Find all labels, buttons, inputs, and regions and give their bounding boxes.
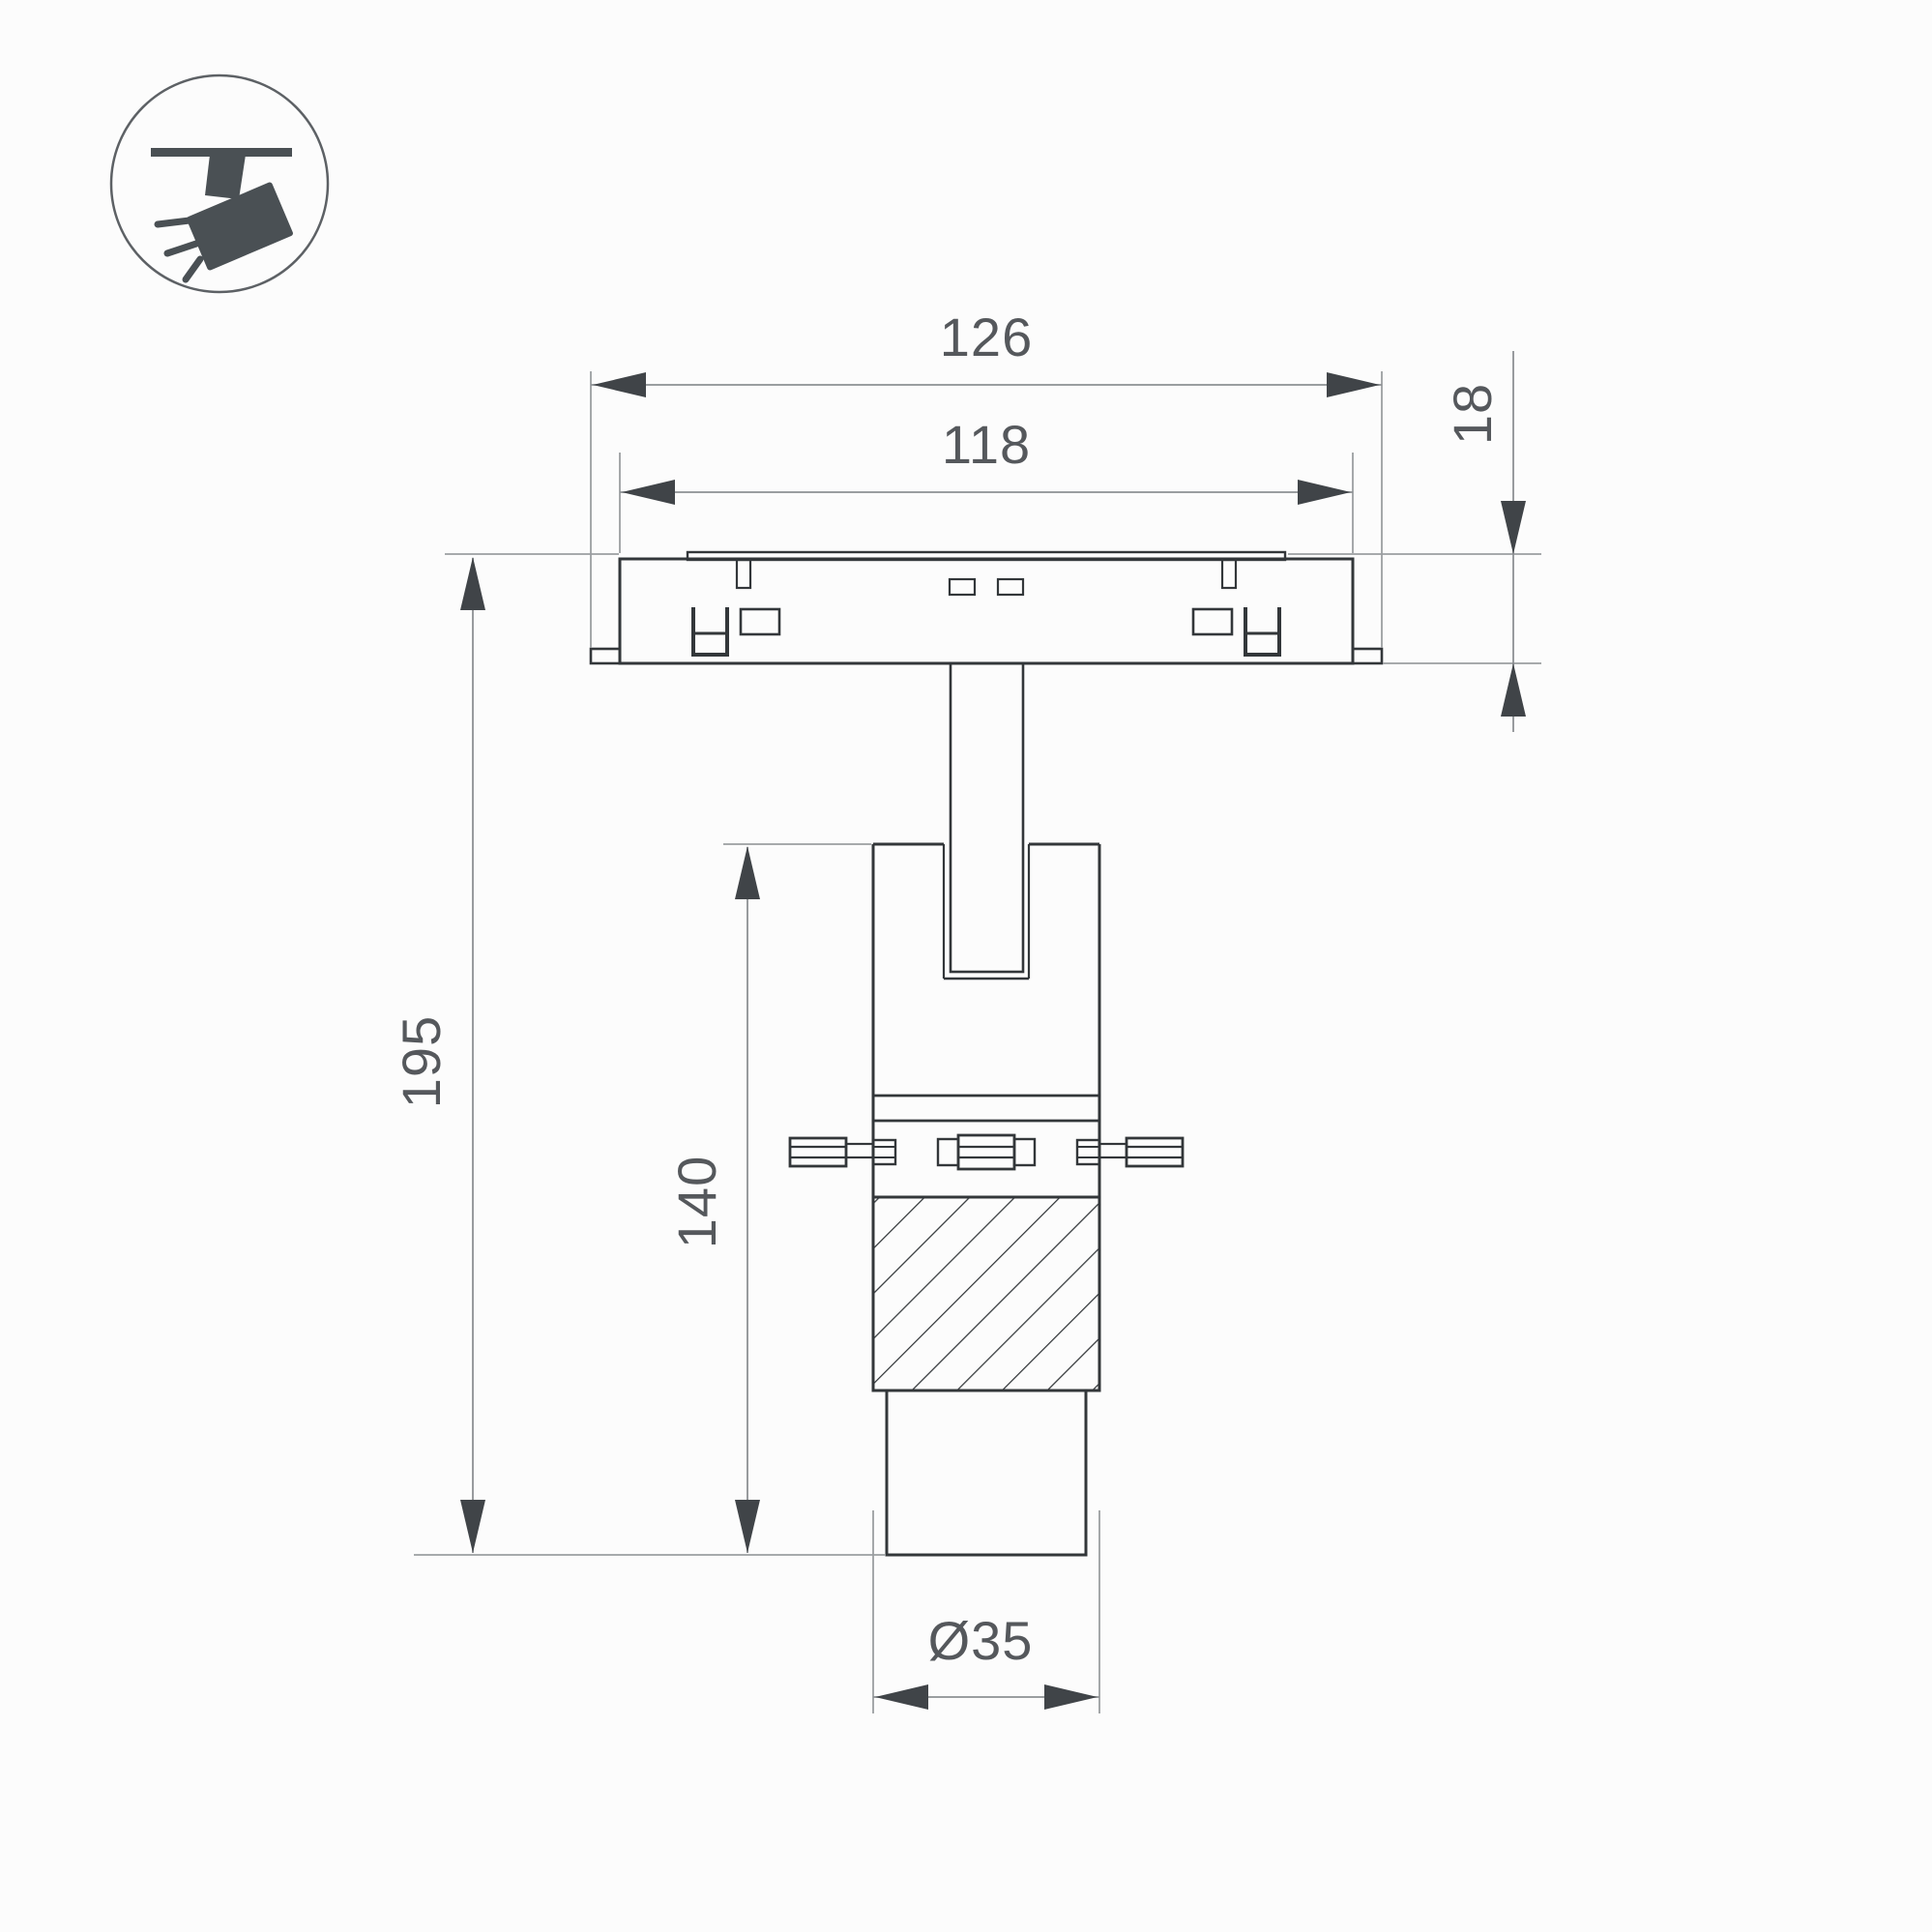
dimension-diameter-label: Ø35 — [928, 1610, 1034, 1671]
plate-clip-left — [737, 560, 750, 588]
plate-hole-left — [950, 579, 975, 595]
dimension-118-label: 118 — [942, 414, 1031, 475]
knob-right — [1077, 1138, 1183, 1166]
dimension-126-label: 126 — [940, 307, 1033, 367]
drawing-canvas: 126 118 18 195 140 — [0, 0, 1932, 1932]
stem-tube — [951, 663, 1023, 972]
knob-left — [790, 1138, 895, 1166]
track-adapter-plate — [591, 552, 1382, 663]
plate-contact-left — [741, 609, 779, 634]
dimension-195-label: 195 — [391, 1015, 452, 1108]
lamp-body — [790, 844, 1183, 1555]
plate-bracket-left — [693, 607, 727, 655]
knurled-section — [873, 1197, 1099, 1390]
dimension-140-label: 140 — [666, 1156, 727, 1248]
plate-tab-left — [591, 649, 620, 663]
dimension-drawing: 126 118 18 195 140 — [0, 0, 1932, 1932]
plate-tab-right — [1353, 649, 1382, 663]
dimension-126: 126 — [591, 307, 1382, 648]
dimension-195: 195 — [391, 554, 886, 1555]
lamp-stem — [944, 663, 1029, 979]
dimension-diameter-35: Ø35 — [873, 1510, 1099, 1713]
plate-hole-right — [998, 579, 1023, 595]
icon-stem — [205, 155, 246, 199]
ceiling-track-spotlight-icon — [111, 75, 328, 292]
dimension-140: 140 — [666, 844, 871, 1553]
plate-body — [620, 559, 1353, 663]
dimension-18: 18 — [1288, 351, 1541, 732]
dimension-18-label: 18 — [1442, 383, 1503, 445]
plate-clip-right — [1222, 560, 1236, 588]
dimension-118: 118 — [620, 414, 1353, 553]
bottom-cylinder — [887, 1390, 1086, 1555]
center-coupler — [938, 1135, 1035, 1169]
plate-contact-right — [1193, 609, 1232, 634]
plate-bracket-right — [1245, 607, 1279, 655]
